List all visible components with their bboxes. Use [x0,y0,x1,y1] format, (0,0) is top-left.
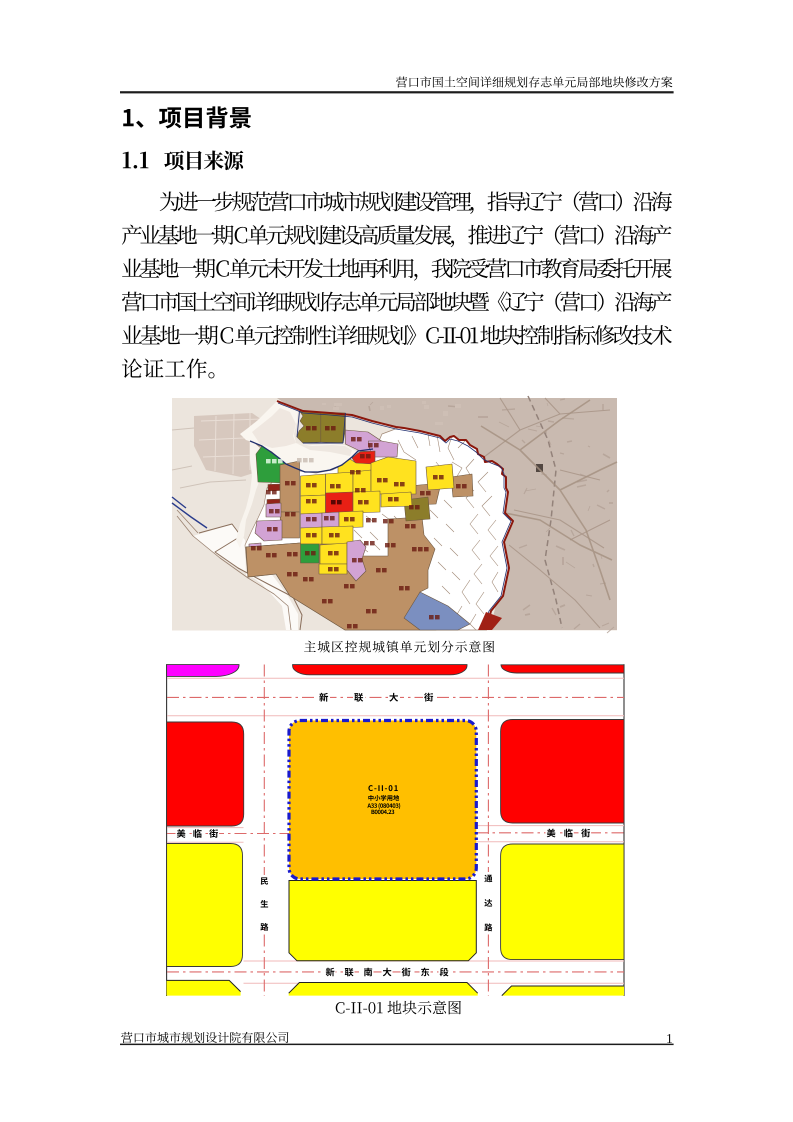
svg-text:1: 1 [666,1031,673,1046]
